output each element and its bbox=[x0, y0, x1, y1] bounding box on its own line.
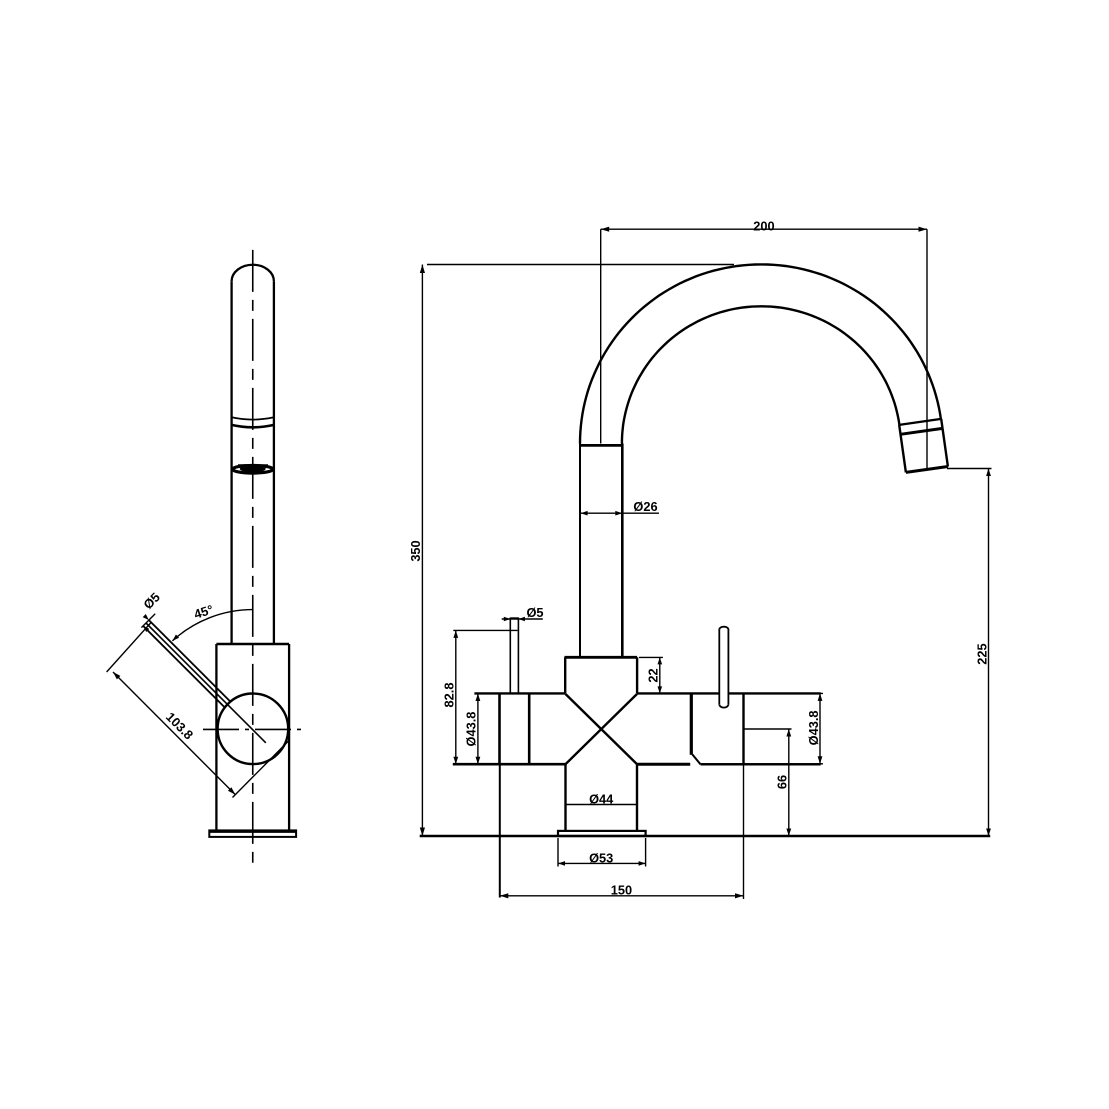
svg-text:Ø26: Ø26 bbox=[633, 499, 657, 514]
svg-text:Ø43.8: Ø43.8 bbox=[806, 710, 821, 745]
svg-text:Ø5: Ø5 bbox=[526, 605, 543, 620]
svg-text:150: 150 bbox=[611, 882, 632, 897]
svg-text:22: 22 bbox=[646, 668, 661, 682]
svg-text:66: 66 bbox=[775, 775, 790, 789]
svg-text:Ø53: Ø53 bbox=[589, 851, 613, 866]
svg-text:200: 200 bbox=[753, 218, 774, 233]
svg-text:350: 350 bbox=[408, 540, 423, 561]
svg-text:82.8: 82.8 bbox=[442, 683, 457, 708]
svg-text:Ø43.8: Ø43.8 bbox=[464, 712, 479, 747]
svg-text:225: 225 bbox=[974, 643, 989, 664]
svg-text:Ø44: Ø44 bbox=[589, 792, 614, 807]
